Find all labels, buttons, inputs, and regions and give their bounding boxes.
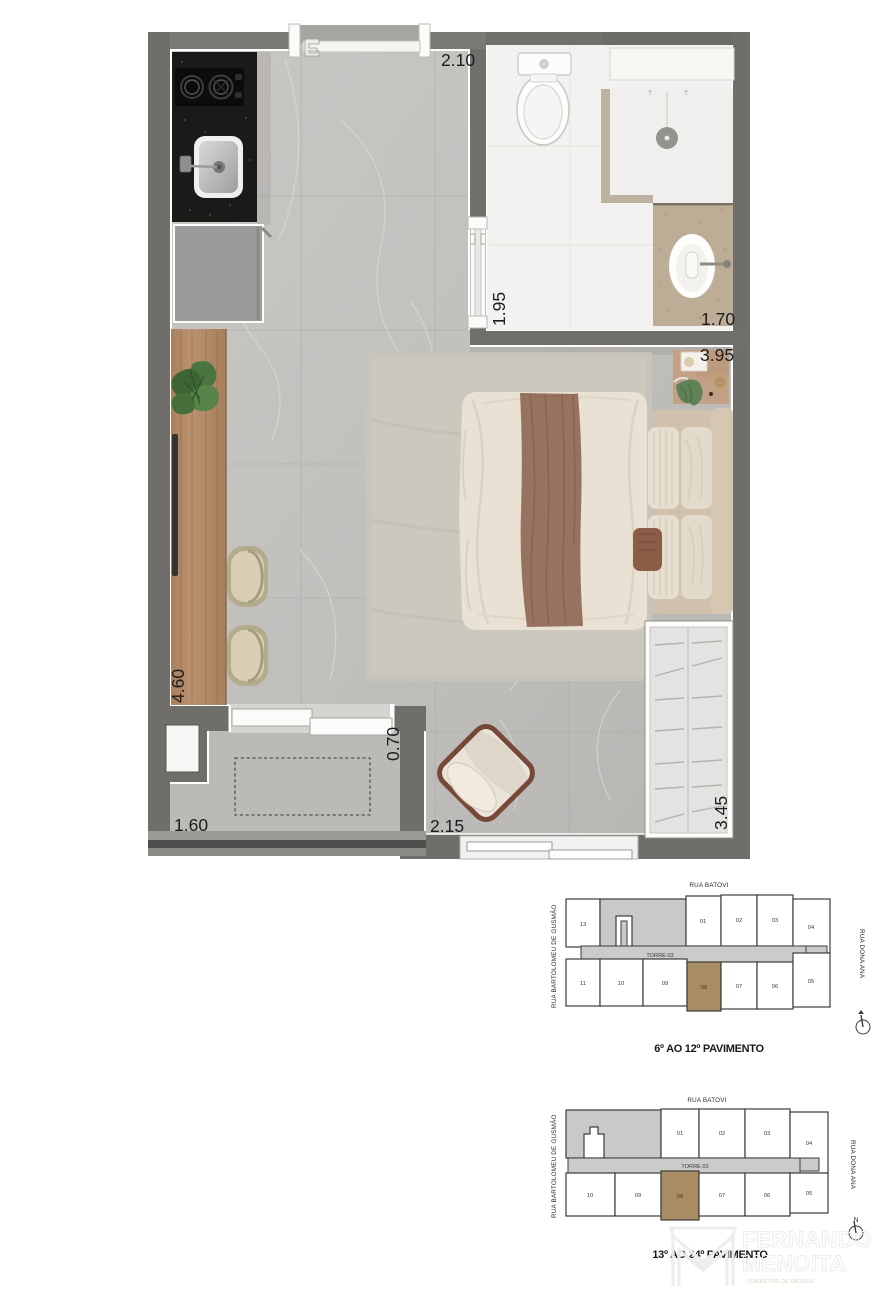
svg-text:04: 04 [808,925,815,931]
svg-text:1.60: 1.60 [174,815,208,835]
svg-text:01: 01 [677,1131,683,1137]
svg-text:TORRE 03: TORRE 03 [681,1164,708,1170]
svg-text:09: 09 [635,1193,641,1199]
svg-text:11: 11 [580,981,586,987]
svg-text:RUA BATOVI: RUA BATOVI [687,1097,726,1104]
svg-text:6º AO 12º PAVIMENTO: 6º AO 12º PAVIMENTO [654,1043,764,1055]
svg-text:MENOITA: MENOITA [742,1251,846,1276]
svg-text:06: 06 [764,1193,770,1199]
svg-text:08: 08 [701,985,707,991]
svg-text:03: 03 [772,918,778,924]
svg-text:FERNANDO: FERNANDO [742,1227,872,1252]
svg-text:2.15: 2.15 [430,816,464,836]
svg-text:RUA BARTOLOMEU DE GUSMÃO: RUA BARTOLOMEU DE GUSMÃO [549,1114,558,1218]
svg-text:08: 08 [677,1194,683,1200]
svg-text:06: 06 [772,984,778,990]
svg-text:04: 04 [806,1141,813,1147]
svg-text:02: 02 [736,918,742,924]
svg-text:07: 07 [736,984,742,990]
svg-text:TORRE 03: TORRE 03 [646,953,673,959]
svg-text:3.45: 3.45 [711,796,731,830]
svg-text:1.70: 1.70 [701,309,735,329]
svg-text:02: 02 [719,1131,725,1137]
svg-text:1.95: 1.95 [489,292,509,326]
svg-text:01: 01 [700,919,706,925]
svg-text:3.95: 3.95 [700,345,734,365]
svg-text:07: 07 [719,1193,725,1199]
svg-text:RUA DONA ANA: RUA DONA ANA [858,929,865,979]
svg-text:05: 05 [808,979,814,985]
svg-text:13: 13 [580,922,586,928]
svg-text:2.10: 2.10 [441,50,475,70]
svg-text:RUA BARTOLOMEU DE GUSMÃO: RUA BARTOLOMEU DE GUSMÃO [549,904,558,1008]
svg-text:05: 05 [806,1191,812,1197]
svg-text:0.70: 0.70 [383,727,403,761]
svg-text:10: 10 [587,1193,593,1199]
svg-text:CORRETOR DE IMÓVEIS: CORRETOR DE IMÓVEIS [747,1278,815,1285]
svg-text:10: 10 [618,981,624,987]
svg-text:4.60: 4.60 [168,669,188,703]
svg-text:RUA DONA ANA: RUA DONA ANA [849,1140,856,1190]
svg-text:03: 03 [764,1131,770,1137]
svg-text:RUA BATOVI: RUA BATOVI [689,882,728,889]
svg-text:09: 09 [662,981,668,987]
